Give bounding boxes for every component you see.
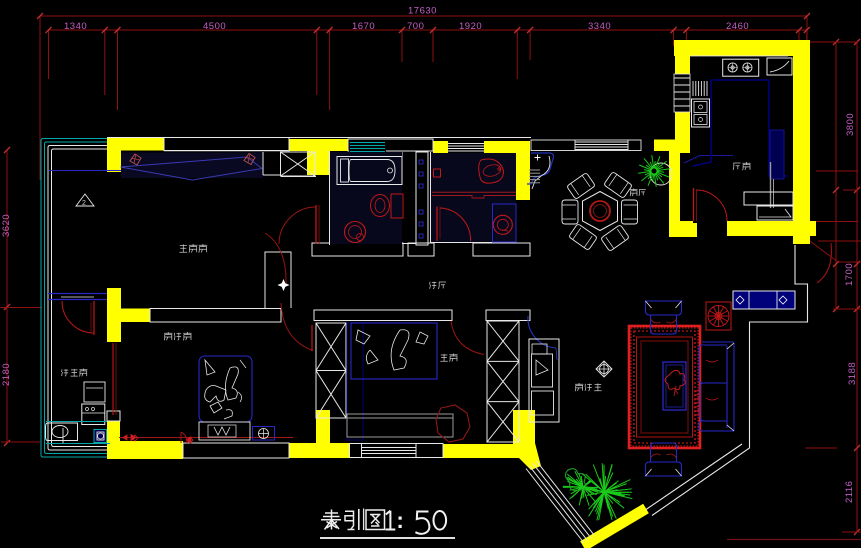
svg-text:1670: 1670	[352, 21, 375, 32]
svg-text:17630: 17630	[408, 6, 437, 17]
svg-text:3800: 3800	[845, 113, 856, 136]
svg-text:3188: 3188	[847, 362, 858, 385]
svg-text:1340: 1340	[64, 21, 87, 32]
svg-text:2460: 2460	[726, 21, 749, 32]
svg-text:1700: 1700	[844, 263, 855, 286]
svg-text:1920: 1920	[459, 21, 482, 32]
svg-text:2180: 2180	[1, 363, 12, 386]
svg-text:3620: 3620	[1, 214, 12, 237]
svg-text:700: 700	[407, 21, 424, 32]
svg-text:2116: 2116	[844, 481, 855, 503]
svg-text:2: 2	[82, 200, 86, 207]
svg-text:3340: 3340	[588, 21, 611, 32]
svg-text:4500: 4500	[203, 21, 226, 32]
